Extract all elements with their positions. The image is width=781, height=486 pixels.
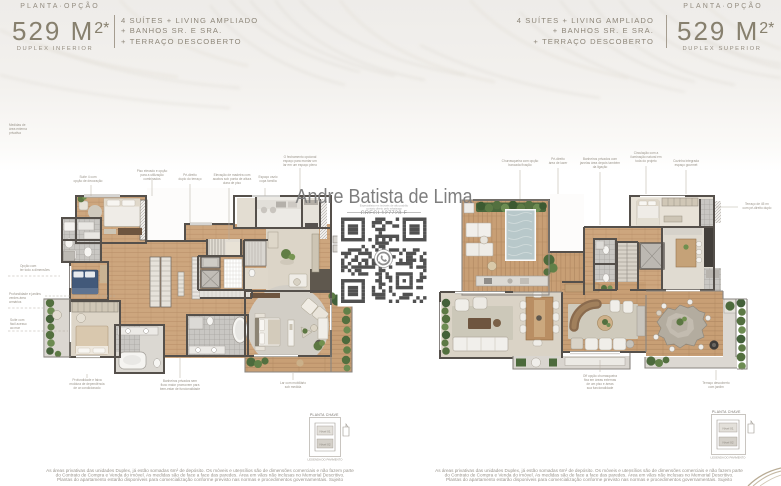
svg-text:duplo do terraço: duplo do terraço <box>178 177 201 181</box>
svg-text:Plantas do apartamento estarão: Plantas do apartamento estarão disponíve… <box>446 477 732 482</box>
svg-text:sob medida: sob medida <box>285 385 302 389</box>
svg-text:LEGENDA DO PAVIMENTO: LEGENDA DO PAVIMENTO <box>308 458 344 462</box>
svg-text:ao mar: ao mar <box>10 326 21 330</box>
svg-text:área de lazer: área de lazer <box>549 161 569 165</box>
svg-text:da ligação: da ligação <box>593 165 608 169</box>
svg-text:opção de decoração: opção de decoração <box>74 179 103 183</box>
svg-text:lar em um espaço pleno: lar em um espaço pleno <box>283 163 317 167</box>
svg-text:com jardim: com jardim <box>708 385 724 389</box>
svg-text:Plantas do apartamento estarão: Plantas do apartamento estarão disponíve… <box>57 477 343 482</box>
svg-text:bem-estar de funcionalidade: bem-estar de funcionalidade <box>160 387 200 391</box>
svg-text:espaço gourmet: espaço gourmet <box>675 163 698 167</box>
svg-text:clara de piso: clara de piso <box>223 181 241 185</box>
svg-text:PLANTA CHAVE: PLANTA CHAVE <box>310 413 339 417</box>
svg-text:com pé-direito duplo: com pé-direito duplo <box>743 206 772 210</box>
svg-text:LEGENDA DO PAVIMENTO: LEGENDA DO PAVIMENTO <box>711 456 747 460</box>
svg-text:bancada fixação: bancada fixação <box>508 163 531 167</box>
svg-text:armários: armários <box>9 300 22 304</box>
svg-text:privativa: privativa <box>9 131 21 135</box>
svg-text:ter todo a dimensões: ter todo a dimensões <box>20 268 50 272</box>
svg-text:sua funcionalidade: sua funcionalidade <box>587 386 614 390</box>
svg-text:toda do projeto: toda do projeto <box>635 159 656 163</box>
svg-text:combinados: combinados <box>143 177 161 181</box>
svg-text:Nível 01: Nível 01 <box>722 427 733 431</box>
svg-text:copa família: copa família <box>259 179 276 183</box>
svg-text:Nível 02: Nível 02 <box>319 443 330 447</box>
svg-text:Nível 02: Nível 02 <box>722 441 733 445</box>
svg-text:de ar condicionado: de ar condicionado <box>74 386 101 390</box>
svg-text:PLANTA CHAVE: PLANTA CHAVE <box>712 410 741 414</box>
svg-text:Nível 01: Nível 01 <box>319 430 330 434</box>
